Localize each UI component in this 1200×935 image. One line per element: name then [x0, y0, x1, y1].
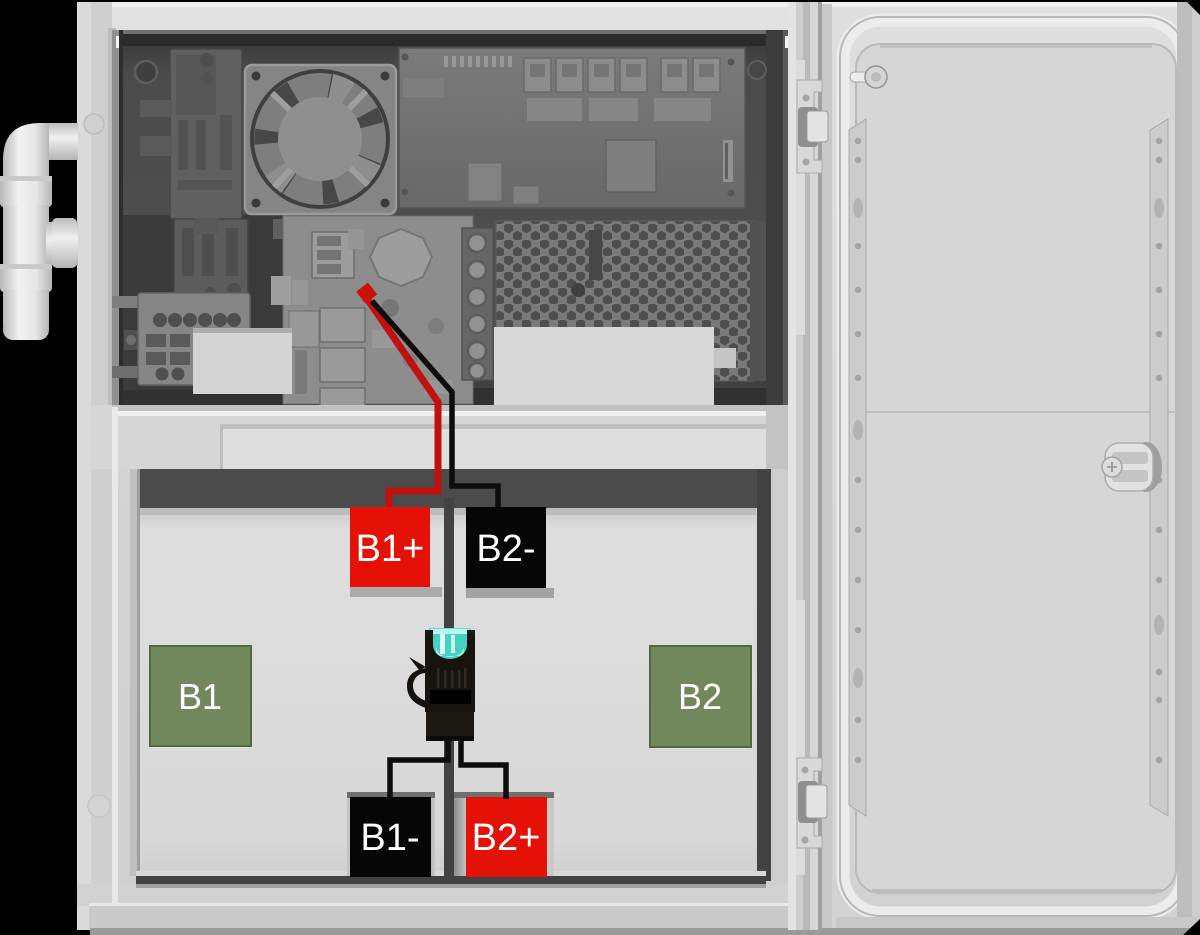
- svg-text:B2: B2: [678, 676, 722, 717]
- svg-text:B2-: B2-: [476, 528, 535, 570]
- svg-text:B1-: B1-: [360, 817, 419, 859]
- svg-text:B1+: B1+: [356, 528, 425, 570]
- svg-text:B2+: B2+: [472, 817, 541, 859]
- svg-text:B1: B1: [178, 676, 222, 717]
